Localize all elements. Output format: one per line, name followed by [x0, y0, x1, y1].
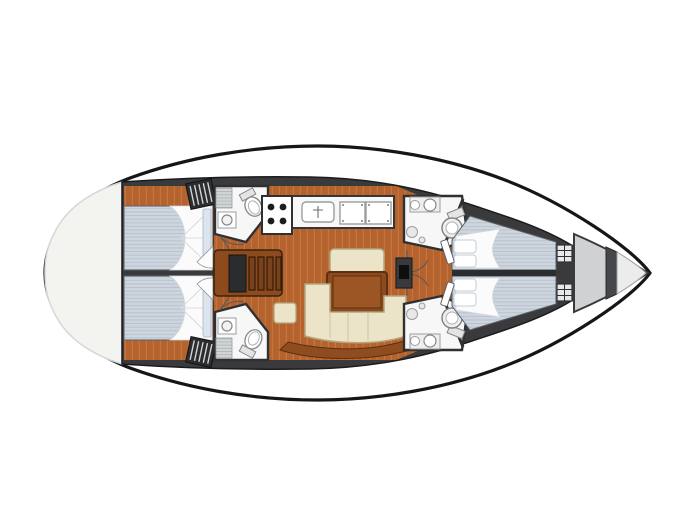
toilet-seat — [446, 222, 458, 234]
galley — [262, 196, 394, 234]
locker — [186, 337, 217, 368]
locker — [186, 179, 217, 210]
stool — [274, 303, 296, 323]
step — [276, 257, 281, 290]
shower-drain — [419, 237, 425, 243]
shower-head — [407, 309, 418, 320]
bulkhead-hatch-starboard — [557, 284, 572, 301]
burner — [268, 204, 275, 211]
boat-floor-plan — [0, 0, 684, 513]
pillow — [454, 240, 476, 253]
burner — [280, 218, 287, 225]
worktop-lockers — [340, 202, 391, 224]
toilet-seat — [446, 312, 458, 324]
burner — [268, 218, 275, 225]
stern-deck — [45, 182, 122, 364]
stove-top — [262, 196, 292, 234]
galley-sink — [302, 202, 334, 222]
burner — [280, 204, 287, 211]
washbasin — [424, 335, 436, 347]
washbasin — [424, 199, 436, 211]
step — [249, 257, 255, 290]
step — [267, 257, 273, 290]
shower-drain — [419, 303, 425, 309]
washbasin-small — [411, 201, 420, 210]
pillow — [454, 279, 476, 291]
boat-floor-plan-page — [0, 0, 684, 513]
table-leaf — [333, 276, 381, 308]
step — [258, 257, 264, 290]
shower-floor — [216, 338, 232, 358]
pillow — [454, 255, 476, 267]
bulkhead-hatch-port — [557, 245, 572, 262]
companionway — [214, 250, 282, 296]
forward-centerline-wall — [452, 270, 556, 276]
stove — [262, 196, 292, 234]
steps-landing — [229, 255, 246, 292]
bow-bulkhead — [606, 247, 617, 299]
washbasin — [222, 321, 232, 331]
shower-floor — [216, 188, 232, 208]
mast-post — [396, 258, 412, 288]
shower-head — [407, 227, 418, 238]
mast-step — [399, 265, 409, 279]
settee — [330, 249, 384, 273]
washbasin — [222, 215, 232, 225]
pillow — [454, 293, 476, 306]
washbasin-small — [411, 337, 420, 346]
